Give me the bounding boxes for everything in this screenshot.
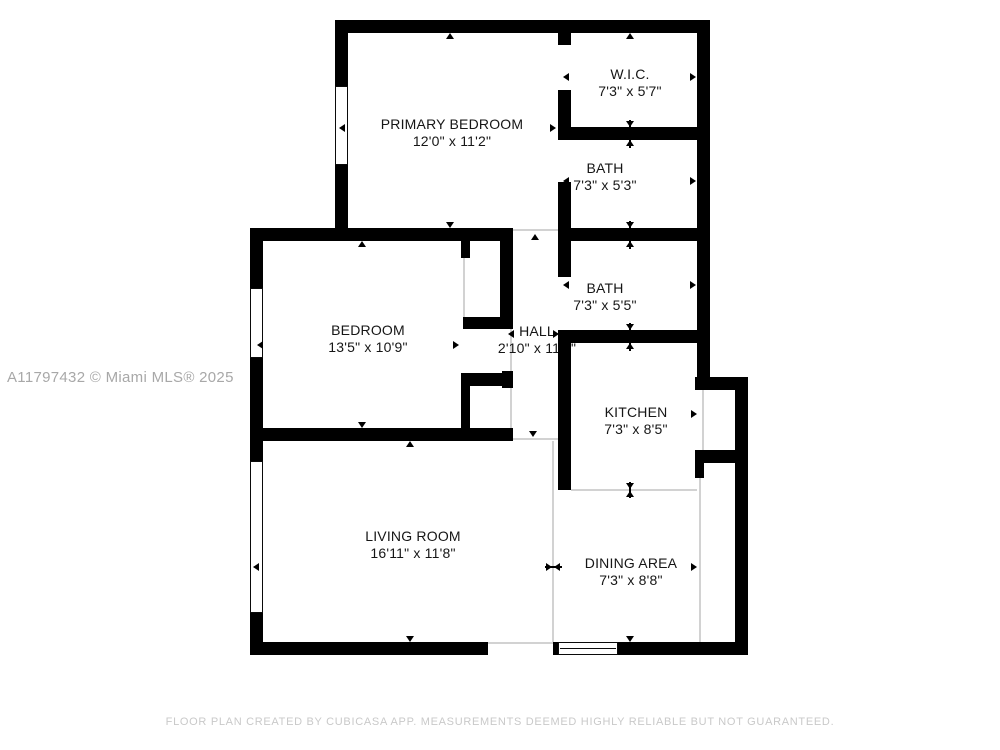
room-name: LIVING ROOM: [365, 528, 461, 544]
dimension-arrow-right-icon: [546, 563, 552, 571]
room-name: BEDROOM: [331, 322, 405, 338]
room-dimensions: 7'3" x 5'7": [598, 83, 661, 100]
room-label-wic: W.I.C.7'3" x 5'7": [598, 66, 661, 100]
wall-segment: [250, 228, 263, 290]
dimension-arrow-up-icon: [358, 241, 366, 247]
wall-segment: [558, 228, 710, 241]
wall-segment: [250, 428, 513, 441]
wall-segment: [695, 450, 748, 463]
room-boundary-line: [702, 390, 704, 450]
footer-disclaimer: FLOOR PLAN CREATED BY CUBICASA APP. MEAS…: [166, 716, 835, 728]
wall-segment: [463, 317, 513, 329]
dimension-arrow-right-icon: [691, 410, 697, 418]
wall-segment: [461, 373, 470, 433]
dimension-arrow-left-icon: [253, 563, 259, 571]
wall-segment: [558, 330, 710, 343]
wall-segment: [695, 377, 748, 390]
dimension-arrow-down-icon: [406, 636, 414, 642]
dimension-arrow-up-icon: [406, 441, 414, 447]
dimension-arrow-left-icon: [564, 410, 570, 418]
room-boundary-line: [513, 438, 558, 440]
dimension-arrow-down-icon: [626, 636, 634, 642]
dimension-arrow-left-icon: [508, 330, 514, 338]
dimension-arrow-up-icon: [446, 33, 454, 39]
room-label-dining-area: DINING AREA7'3" x 8'8": [585, 555, 677, 589]
room-label-kitchen: KITCHEN7'3" x 8'5": [604, 404, 667, 438]
dimension-arrow-left-icon: [554, 563, 560, 571]
dimension-arrow-up-icon: [626, 241, 634, 247]
dimension-arrow-left-icon: [563, 281, 569, 289]
wall-segment: [335, 20, 348, 90]
dimension-arrow-left-icon: [257, 341, 263, 349]
room-dimensions: 7'3" x 5'3": [573, 177, 636, 194]
dimension-arrow-down-icon: [626, 324, 634, 330]
room-boundary-line: [571, 489, 697, 491]
room-name: W.I.C.: [610, 66, 649, 82]
room-dimensions: 7'3" x 5'5": [573, 297, 636, 314]
window: [250, 461, 263, 613]
wall-segment: [335, 20, 710, 33]
dimension-arrow-right-icon: [453, 341, 459, 349]
room-label-bath-upper: BATH7'3" x 5'3": [573, 160, 636, 194]
room-label-bedroom: BEDROOM13'5" x 10'9": [328, 322, 407, 356]
window: [558, 642, 618, 655]
room-label-bath-lower: BATH7'3" x 5'5": [573, 280, 636, 314]
dimension-arrow-down-icon: [626, 483, 634, 489]
wall-segment: [695, 463, 704, 478]
wall-segment: [250, 356, 263, 463]
floor-plan: A11797432 © Miami MLS® 2025 FLOOR PLAN C…: [0, 0, 1000, 750]
dimension-arrow-left-icon: [563, 73, 569, 81]
dimension-arrow-up-icon: [626, 491, 634, 497]
wall-segment: [250, 228, 513, 241]
wall-segment: [735, 377, 748, 655]
room-label-living-room: LIVING ROOM16'11" x 11'8": [365, 528, 461, 562]
room-boundary-line: [552, 441, 554, 642]
room-name: HALL: [519, 323, 555, 339]
dimension-arrow-down-icon: [446, 222, 454, 228]
room-boundary-line: [463, 258, 465, 317]
dimension-arrow-up-icon: [626, 33, 634, 39]
room-dimensions: 7'3" x 8'5": [604, 421, 667, 438]
wall-segment: [461, 241, 470, 258]
mls-watermark: A11797432 © Miami MLS® 2025: [7, 369, 234, 386]
room-name: PRIMARY BEDROOM: [381, 116, 524, 132]
room-boundary-line: [699, 463, 701, 642]
room-dimensions: 12'0" x 11'2": [381, 133, 524, 150]
dimension-arrow-down-icon: [358, 422, 366, 428]
dimension-arrow-right-icon: [553, 330, 559, 338]
room-name: KITCHEN: [605, 404, 668, 420]
dimension-arrow-down-icon: [626, 222, 634, 228]
dimension-arrow-right-icon: [550, 124, 556, 132]
wall-segment: [558, 241, 571, 277]
room-name: BATH: [586, 160, 623, 176]
wall-segment: [500, 232, 513, 327]
wall-segment: [502, 371, 513, 388]
dimension-arrow-up-icon: [531, 234, 539, 240]
room-label-primary-bedroom: PRIMARY BEDROOM12'0" x 11'2": [381, 116, 524, 150]
dimension-arrow-down-icon: [626, 121, 634, 127]
room-boundary-line: [488, 642, 553, 644]
wall-segment: [558, 127, 710, 140]
dimension-arrow-right-icon: [690, 73, 696, 81]
dimension-arrow-right-icon: [690, 177, 696, 185]
room-name: DINING AREA: [585, 555, 677, 571]
dimension-arrow-left-icon: [339, 124, 345, 132]
room-name: BATH: [586, 280, 623, 296]
dimension-arrow-up-icon: [626, 343, 634, 349]
room-dimensions: 13'5" x 10'9": [328, 339, 407, 356]
room-boundary-line: [513, 229, 558, 231]
room-dimensions: 7'3" x 8'8": [585, 572, 677, 589]
room-dimensions: 16'11" x 11'8": [365, 545, 461, 562]
dimension-arrow-up-icon: [626, 140, 634, 146]
wall-segment: [558, 27, 571, 45]
wall-segment: [617, 642, 748, 655]
dimension-arrow-right-icon: [690, 281, 696, 289]
dimension-arrow-down-icon: [529, 431, 537, 437]
dimension-arrow-right-icon: [691, 563, 697, 571]
dimension-arrow-left-icon: [563, 177, 569, 185]
wall-segment: [250, 642, 488, 655]
